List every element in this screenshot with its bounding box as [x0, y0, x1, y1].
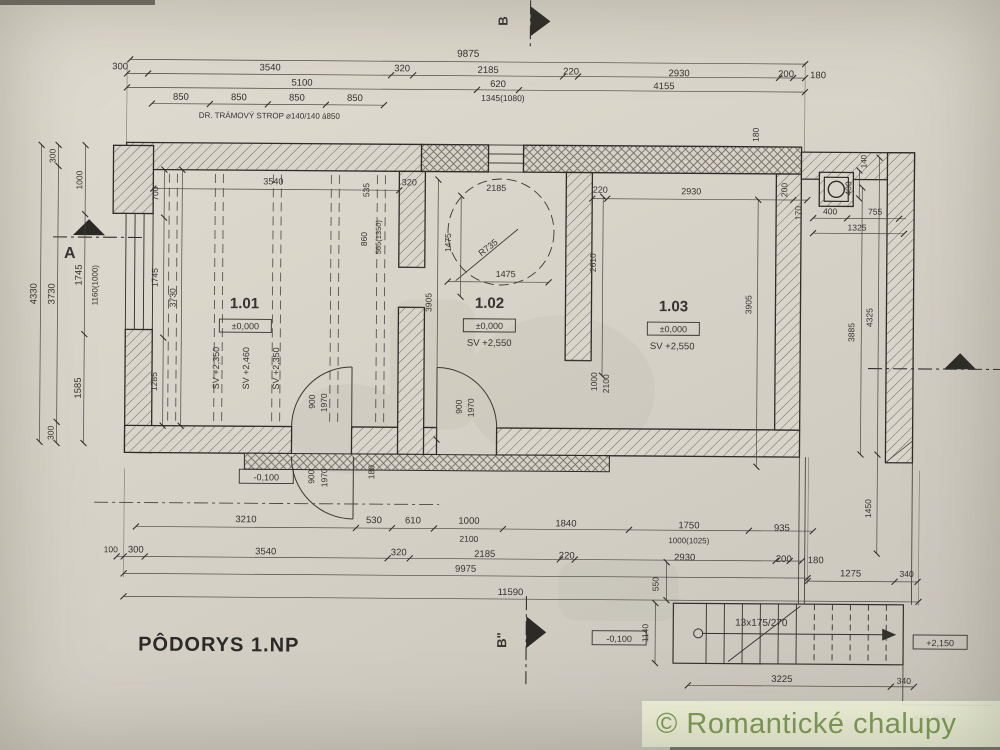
- drawing-title: PÔDORYS 1.NP: [138, 633, 299, 657]
- dim-label: 320: [402, 177, 417, 187]
- dim-label: 3540: [260, 62, 281, 73]
- construction-lines: [798, 440, 995, 705]
- dim-label: 1000: [74, 170, 84, 189]
- dim-label: 1275: [840, 568, 861, 579]
- dim-label: 100: [104, 544, 119, 554]
- dim-label: 1750: [678, 520, 699, 531]
- dim-label: 850: [231, 92, 247, 103]
- dim-label: 1345(1080): [481, 93, 525, 103]
- scanned-floor-plan-page: 9875300354032021852202930200180510062041…: [0, 0, 1000, 750]
- dim-label: 200: [779, 183, 789, 198]
- dim-label: 300: [128, 544, 144, 555]
- dim-label: SV +2,350: [271, 347, 281, 389]
- dim-label: +2,150: [926, 638, 954, 648]
- dim-label: 11590: [498, 587, 524, 598]
- dim-label: ±0,000: [232, 321, 260, 331]
- dim-label: 1.01: [230, 295, 259, 312]
- dim-label: 1160(1000): [90, 265, 99, 306]
- dim-label: 13x175/270: [735, 618, 788, 629]
- dim-label: 300: [46, 425, 56, 440]
- dim-label: 1000: [458, 516, 479, 527]
- dim-label: 850: [289, 93, 305, 104]
- dim-label: SV +2,550: [650, 341, 695, 352]
- dim-label: 220: [563, 66, 579, 77]
- dim-label: R735: [476, 237, 499, 258]
- dim-label: 3730: [46, 283, 57, 304]
- dim-label: 220: [559, 550, 575, 561]
- dim-label: ±0,000: [476, 321, 504, 331]
- dim-label: 1450: [863, 499, 873, 518]
- dim-label: 4325: [864, 308, 874, 327]
- dim-label: 400: [843, 181, 853, 196]
- dim-label: 1000(1025): [668, 536, 709, 545]
- dim-label: 2100: [459, 534, 478, 544]
- dim-label: 340: [897, 676, 912, 686]
- dim-label: 620: [490, 79, 506, 90]
- watermark-band: © Romantické chalupy: [642, 701, 1000, 747]
- dim-label: 755: [868, 207, 883, 217]
- drawing-sheet: 9875300354032021852202930200180510062041…: [0, 0, 1000, 750]
- dim-label: 850: [347, 93, 363, 104]
- dim-label: 900: [306, 469, 316, 484]
- dim-label: 9875: [457, 49, 480, 60]
- dim-label: 180: [751, 127, 761, 142]
- dim-label: A: [64, 245, 76, 262]
- dim-label: 4330: [28, 283, 39, 304]
- dim-label: 2610: [588, 253, 598, 272]
- dim-label: 610: [405, 515, 421, 526]
- dim-label: 180: [366, 465, 376, 480]
- dim-label: 1970: [466, 398, 476, 417]
- dim-label: 1285: [149, 372, 159, 391]
- dim-label: 1140: [640, 624, 650, 643]
- dim-label: 3730: [167, 288, 177, 307]
- dim-label: 180: [810, 70, 826, 81]
- dim-label: 550: [650, 577, 660, 592]
- dim-label: 1970: [319, 393, 329, 412]
- dim-label: B: [495, 16, 510, 25]
- dim-label: 1.03: [659, 298, 688, 315]
- watermark-text: © Romantické chalupy: [656, 708, 957, 741]
- dim-label: 3225: [771, 674, 792, 685]
- dim-label: 300: [47, 148, 57, 163]
- dim-label: 860: [359, 232, 369, 247]
- dim-label: 200: [776, 554, 792, 565]
- dim-label: 850: [173, 92, 189, 103]
- section-marker-b-bottom: [526, 596, 547, 684]
- dim-label: 2930: [681, 186, 701, 196]
- dim-label: 1475: [443, 233, 453, 252]
- dim-label: 2930: [674, 552, 695, 563]
- dim-label: 900: [307, 394, 317, 409]
- dim-label: 1000: [589, 372, 599, 391]
- dim-label: 900: [454, 399, 464, 414]
- stair: [673, 603, 903, 665]
- dim-label: 2185: [486, 183, 506, 193]
- dim-label: 2185: [478, 65, 499, 76]
- dim-label: 200: [778, 69, 794, 80]
- dim-label: 340: [899, 569, 914, 579]
- dim-label: 535: [361, 183, 371, 198]
- dim-label: 140: [859, 154, 868, 168]
- dim-label: ±0,000: [660, 324, 688, 334]
- dim-label: 530: [366, 515, 382, 526]
- dim-label: SV +2,350: [211, 347, 221, 389]
- eaves-dashed-line: [94, 502, 439, 504]
- dim-label: 3885: [846, 323, 856, 342]
- dim-label: 2100: [601, 374, 611, 393]
- dim-label: 1745: [150, 268, 160, 287]
- dim-label: 320: [391, 547, 407, 558]
- dim-label: 3210: [235, 514, 256, 525]
- dim-label: 935: [774, 523, 790, 534]
- dim-label: 170: [793, 206, 803, 221]
- section-marker-b-top: [530, 0, 550, 50]
- dim-label: -0,100: [253, 472, 279, 482]
- dim-label: 1.02: [475, 295, 504, 312]
- dim-label: 300: [112, 61, 128, 72]
- dim-label: 700: [150, 186, 160, 201]
- dim-label: 180: [808, 555, 824, 566]
- dim-label: 400: [823, 206, 838, 216]
- dim-label: 1840: [555, 518, 576, 529]
- dim-label: 320: [394, 63, 410, 74]
- dim-label: 1745: [74, 264, 85, 285]
- dim-label: SV +2,460: [241, 347, 251, 389]
- dim-label: 1325: [848, 222, 867, 232]
- dim-label: DR. TRÁMOVÝ STROP ⌀140/140 á850: [199, 111, 341, 121]
- dim-label: -0,100: [606, 634, 632, 644]
- dim-label: 1970: [319, 468, 329, 487]
- dim-label: 3905: [743, 295, 753, 314]
- dim-label: 9975: [455, 564, 476, 575]
- dim-label: 2185: [474, 549, 495, 560]
- dim-label: 2930: [668, 68, 689, 79]
- dim-label: 3540: [263, 176, 283, 186]
- section-marker-a: [53, 219, 143, 238]
- dim-label: B": [494, 632, 509, 648]
- dim-label: 3540: [255, 546, 276, 557]
- photo-edge-top: [0, 0, 155, 5]
- dim-label: 3905: [423, 293, 433, 312]
- dim-label: SV +2,550: [467, 338, 512, 349]
- dim-label: 220: [593, 185, 608, 195]
- dim-label: 1585: [73, 377, 84, 398]
- dim-label: 5100: [291, 78, 312, 89]
- dim-label: 565(1350): [374, 220, 383, 255]
- dim-label: 4155: [653, 81, 674, 92]
- window-top: [488, 145, 523, 172]
- dim-label: 1475: [496, 269, 516, 279]
